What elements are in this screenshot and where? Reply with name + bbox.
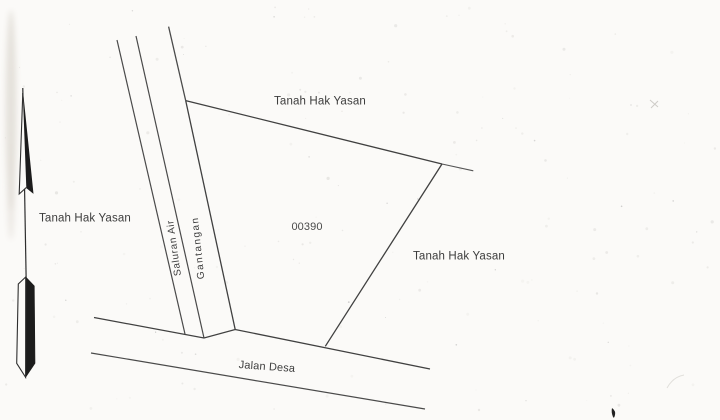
svg-text:Tanah Hak Yasan: Tanah Hak Yasan	[39, 213, 131, 225]
svg-text:00390: 00390	[291, 221, 322, 233]
svg-text:Tanah Hak Yasan: Tanah Hak Yasan	[274, 96, 366, 108]
svg-text:Tanah Hak Yasan: Tanah Hak Yasan	[413, 251, 505, 263]
